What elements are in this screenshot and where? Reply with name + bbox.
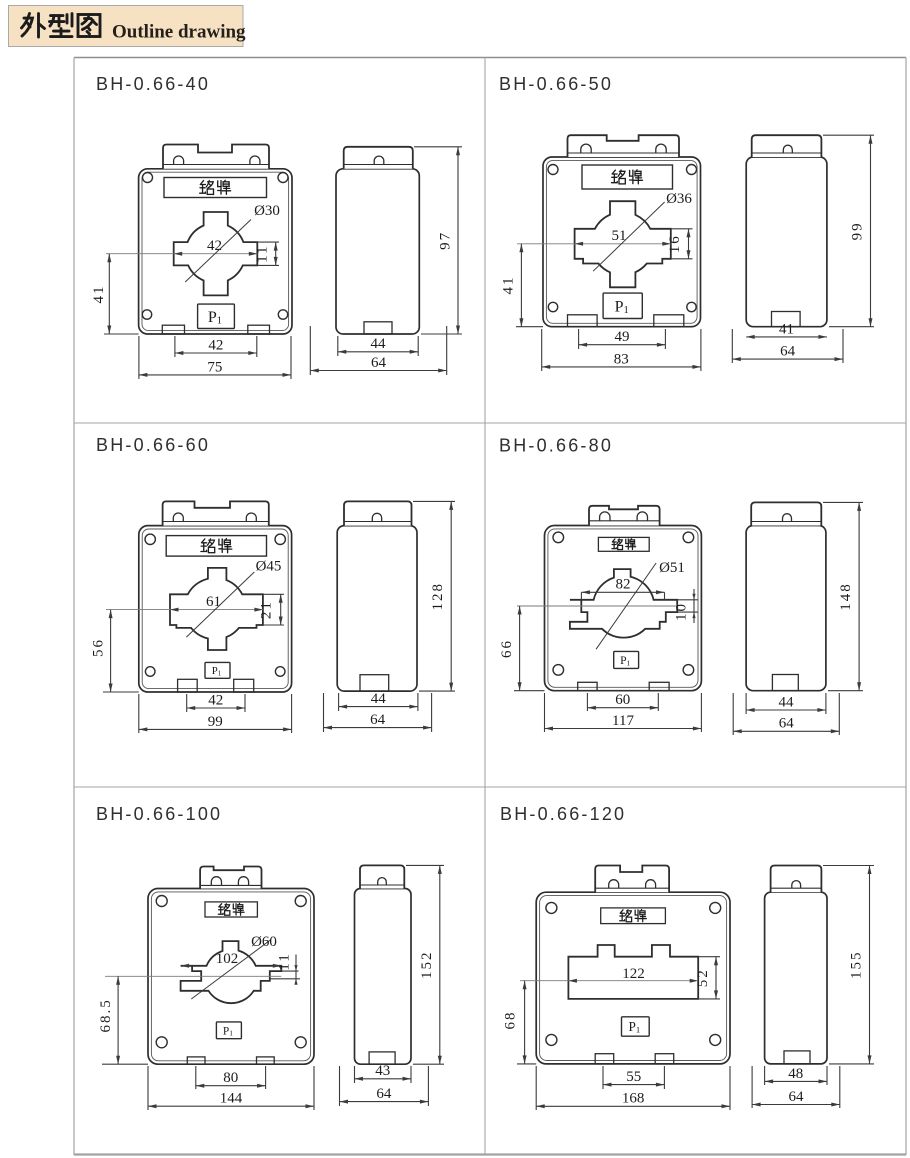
svg-text:BH-0.66-60: BH-0.66-60 <box>96 435 210 455</box>
svg-text:Outline drawing: Outline drawing <box>112 22 246 43</box>
svg-text:42: 42 <box>207 238 222 254</box>
svg-text:122: 122 <box>622 966 645 982</box>
svg-text:168: 168 <box>622 1091 645 1107</box>
svg-text:BH-0.66-80: BH-0.66-80 <box>499 436 613 456</box>
svg-text:Ø45: Ø45 <box>256 559 282 575</box>
svg-text:44: 44 <box>779 694 795 710</box>
svg-text:148: 148 <box>838 582 854 611</box>
svg-text:48: 48 <box>788 1066 803 1082</box>
svg-text:61: 61 <box>206 594 221 610</box>
svg-text:41: 41 <box>501 276 517 295</box>
svg-text:64: 64 <box>376 1086 392 1102</box>
svg-text:21: 21 <box>258 600 274 619</box>
svg-text:60: 60 <box>615 692 630 708</box>
svg-text:Ø51: Ø51 <box>659 560 685 576</box>
svg-text:97: 97 <box>438 231 454 250</box>
svg-text:44: 44 <box>371 691 387 707</box>
svg-text:55: 55 <box>626 1069 641 1085</box>
svg-text:41: 41 <box>779 321 794 337</box>
svg-text:56: 56 <box>90 638 106 657</box>
svg-text:11: 11 <box>277 952 293 970</box>
svg-text:82: 82 <box>616 577 631 593</box>
svg-text:99: 99 <box>208 714 223 730</box>
svg-text:Ø30: Ø30 <box>254 203 280 219</box>
svg-text:16: 16 <box>667 234 683 253</box>
svg-text:155: 155 <box>849 950 865 979</box>
svg-text:117: 117 <box>612 713 634 729</box>
svg-text:68: 68 <box>503 1011 519 1030</box>
svg-text:11: 11 <box>255 244 271 262</box>
svg-text:66: 66 <box>499 639 515 658</box>
svg-text:44: 44 <box>371 336 387 352</box>
svg-text:Ø60: Ø60 <box>251 934 277 950</box>
svg-text:BH-0.66-50: BH-0.66-50 <box>499 74 613 94</box>
svg-text:10: 10 <box>674 602 690 621</box>
svg-text:64: 64 <box>789 1089 805 1105</box>
svg-text:42: 42 <box>208 692 223 708</box>
svg-text:68.5: 68.5 <box>98 998 114 1032</box>
svg-text:144: 144 <box>220 1091 243 1107</box>
svg-text:64: 64 <box>779 716 795 732</box>
svg-text:75: 75 <box>207 359 222 375</box>
svg-text:BH-0.66-120: BH-0.66-120 <box>500 804 626 824</box>
svg-text:64: 64 <box>780 344 796 360</box>
svg-text:80: 80 <box>223 1070 238 1086</box>
svg-text:128: 128 <box>430 582 446 611</box>
svg-text:BH-0.66-100: BH-0.66-100 <box>96 804 222 824</box>
svg-text:43: 43 <box>375 1063 390 1079</box>
svg-text:41: 41 <box>91 285 107 304</box>
svg-text:49: 49 <box>615 329 630 345</box>
svg-text:64: 64 <box>371 355 387 371</box>
svg-text:Ø36: Ø36 <box>666 191 692 207</box>
svg-text:42: 42 <box>208 337 223 353</box>
svg-text:83: 83 <box>614 351 629 367</box>
svg-text:BH-0.66-40: BH-0.66-40 <box>96 74 210 94</box>
svg-text:102: 102 <box>216 951 239 967</box>
svg-text:52: 52 <box>695 968 711 987</box>
svg-text:64: 64 <box>370 712 386 728</box>
svg-text:99: 99 <box>850 221 866 240</box>
svg-text:152: 152 <box>419 951 435 980</box>
